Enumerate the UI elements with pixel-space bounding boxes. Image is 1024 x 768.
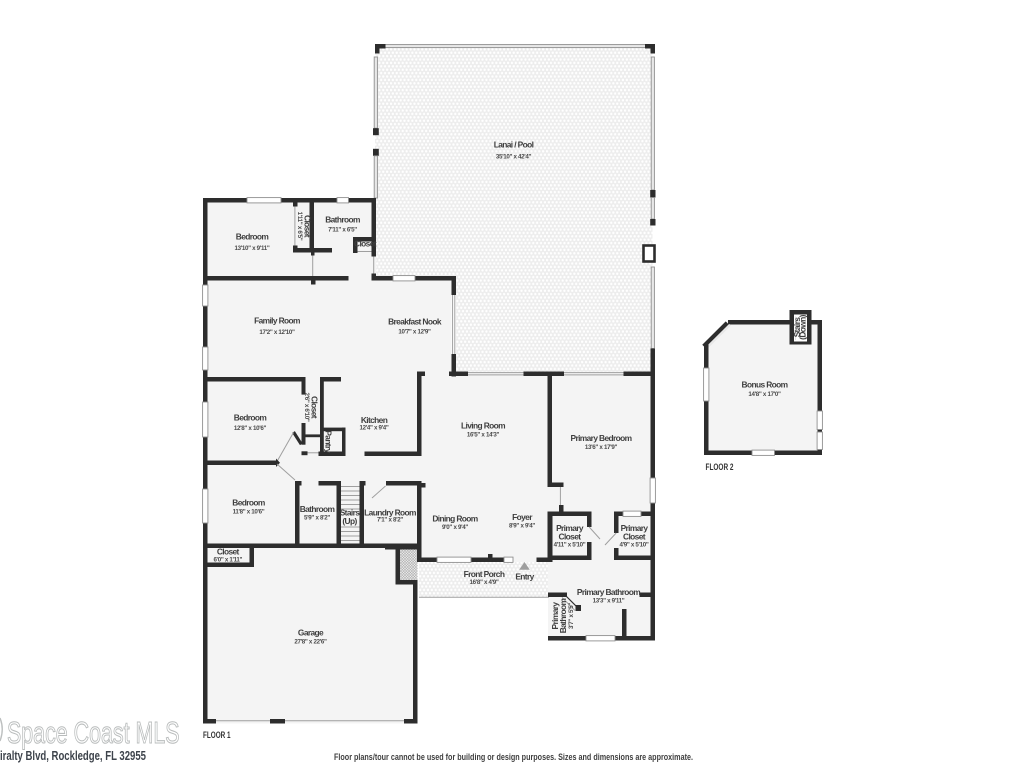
- svg-text:1'11" x 6'5": 1'11" x 6'5": [296, 212, 303, 241]
- svg-text:7'1" x 8'2": 7'1" x 8'2": [377, 517, 403, 524]
- svg-text:Closet: Closet: [302, 215, 312, 238]
- svg-text:27'8" x 22'6": 27'8" x 22'6": [294, 639, 327, 646]
- svg-text:Closet: Closet: [217, 547, 240, 557]
- svg-text:Closet: Closet: [623, 532, 646, 542]
- svg-text:Bedroom: Bedroom: [236, 232, 269, 242]
- svg-text:iralty Blvd, Rockledge, FL 329: iralty Blvd, Rockledge, FL 32955: [0, 749, 146, 763]
- svg-text:Kitchen: Kitchen: [361, 415, 388, 425]
- svg-text:11'8" x 10'6": 11'8" x 10'6": [233, 509, 265, 516]
- svg-text:Living Room: Living Room: [461, 421, 505, 431]
- svg-text:3'7" x 5'5": 3'7" x 5'5": [568, 603, 575, 629]
- svg-text:Closet: Closet: [354, 239, 377, 249]
- svg-text:Floor plans/tour cannot be use: Floor plans/tour cannot be used for buil…: [334, 752, 693, 762]
- svg-text:17'2" x 12'10": 17'2" x 12'10": [259, 329, 295, 336]
- svg-text:FLOOR 1: FLOOR 1: [203, 730, 231, 741]
- svg-text:16'5" x 14'3": 16'5" x 14'3": [467, 432, 500, 439]
- svg-text:13'3" x 9'11": 13'3" x 9'11": [593, 598, 625, 605]
- svg-text:Bedroom: Bedroom: [232, 498, 265, 508]
- svg-text:Garage: Garage: [298, 628, 324, 638]
- svg-text:(Down): (Down): [797, 314, 807, 339]
- svg-text:Primary Bathroom: Primary Bathroom: [577, 587, 640, 597]
- svg-text:5'9" x 8'2": 5'9" x 8'2": [304, 515, 330, 522]
- svg-text:Dining Room: Dining Room: [432, 514, 477, 524]
- svg-text:4'11" x 5'10": 4'11" x 5'10": [554, 542, 586, 549]
- svg-text:Bathroom: Bathroom: [325, 215, 360, 225]
- svg-text:Family Room: Family Room: [254, 316, 300, 326]
- svg-text:6'0" x 1'11": 6'0" x 1'11": [213, 557, 242, 564]
- svg-text:14'8" x 17'0": 14'8" x 17'0": [748, 391, 781, 398]
- svg-text:Breakfast Nook: Breakfast Nook: [388, 317, 442, 327]
- svg-text:Closet: Closet: [310, 396, 320, 419]
- svg-text:Bedroom: Bedroom: [234, 413, 267, 423]
- svg-text:12'4" x 9'4": 12'4" x 9'4": [359, 425, 388, 432]
- svg-text:12'8" x 10'6": 12'8" x 10'6": [234, 425, 267, 432]
- svg-text:Bonus Room: Bonus Room: [742, 380, 788, 390]
- svg-text:Space Coast MLS: Space Coast MLS: [7, 716, 180, 750]
- svg-text:Pantry: Pantry: [324, 430, 334, 453]
- svg-text:16'8" x 4'9": 16'8" x 4'9": [469, 579, 498, 586]
- svg-text:Closet: Closet: [559, 532, 582, 542]
- svg-text:4'9" x 5'10": 4'9" x 5'10": [619, 542, 648, 549]
- svg-text:Foyer: Foyer: [512, 512, 533, 522]
- svg-text:2'6" x 6'10": 2'6" x 6'10": [303, 392, 310, 421]
- svg-text:Bathroom: Bathroom: [558, 599, 568, 634]
- svg-text:Lanai / Pool: Lanai / Pool: [494, 140, 534, 150]
- svg-text:7'11" x 6'5": 7'11" x 6'5": [328, 227, 357, 234]
- svg-text:Primary Bedroom: Primary Bedroom: [571, 433, 632, 443]
- svg-text:35'10" x 42'4": 35'10" x 42'4": [496, 154, 532, 161]
- svg-text:(Up): (Up): [342, 516, 357, 526]
- svg-text:Front Porch: Front Porch: [464, 569, 505, 579]
- svg-text:13'10" x 9'11": 13'10" x 9'11": [235, 245, 270, 252]
- svg-text:10'7" x 12'9": 10'7" x 12'9": [398, 329, 431, 336]
- svg-text:9'0" x 9'4": 9'0" x 9'4": [442, 524, 468, 531]
- svg-text:FLOOR 2: FLOOR 2: [706, 462, 734, 473]
- svg-text:13'6" x 17'9": 13'6" x 17'9": [585, 444, 618, 451]
- svg-text:8'9" x 9'4": 8'9" x 9'4": [509, 523, 535, 530]
- svg-text:Entry: Entry: [515, 572, 534, 582]
- svg-text:Bathroom: Bathroom: [300, 504, 335, 514]
